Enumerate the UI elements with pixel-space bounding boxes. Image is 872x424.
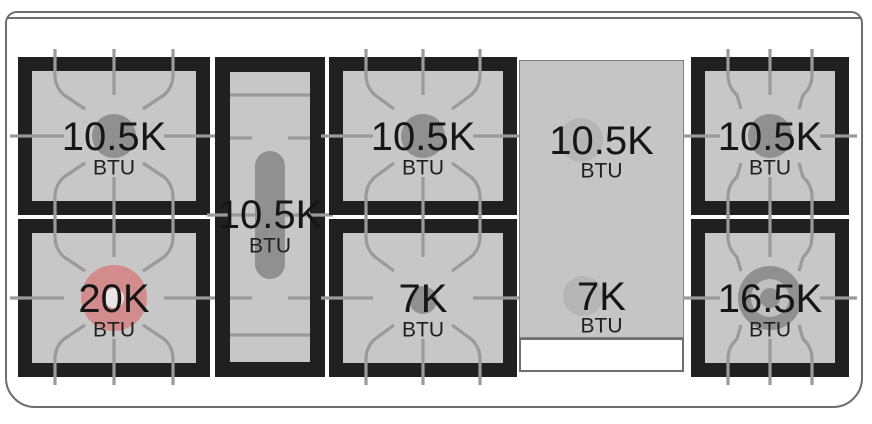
burner-back-right: 10.5K BTU <box>691 57 849 215</box>
burner-btu-unit: BTU <box>749 158 791 179</box>
burner-btu-unit: BTU <box>402 320 444 341</box>
burner-btu-unit: BTU <box>749 320 791 341</box>
burner-back-middle: 10.5K BTU <box>329 57 517 215</box>
griddle-front-btu-unit: BTU <box>581 316 623 337</box>
griddle-tray-strip <box>519 338 684 372</box>
burner-btu-value: 10.5K <box>218 195 323 235</box>
griddle-zone: 10.5K BTU 7K BTU <box>519 60 684 338</box>
griddle-front-btu-value: 7K <box>577 277 626 317</box>
burner-center-oval: 10.5K BTU <box>215 57 325 377</box>
burner-btu-value: 16.5K <box>718 279 823 319</box>
burner-btu-unit: BTU <box>93 158 135 179</box>
burner-btu-unit: BTU <box>249 236 291 257</box>
burner-btu-unit: BTU <box>402 158 444 179</box>
burner-front-middle: 7K BTU <box>329 219 517 377</box>
burner-front-right: 16.5K BTU <box>691 219 849 377</box>
cooktop-back-edge-line <box>8 17 860 19</box>
burner-btu-value: 10.5K <box>371 117 476 157</box>
burner-btu-value: 10.5K <box>62 117 167 157</box>
burner-btu-unit: BTU <box>93 320 135 341</box>
burner-btu-value: 7K <box>399 279 448 319</box>
griddle-back-btu-value: 10.5K <box>549 121 654 161</box>
burner-front-left: 20K BTU <box>18 219 210 377</box>
burner-btu-value: 20K <box>78 279 149 319</box>
cooktop-diagram: 10.5K BTU 20K BTU 10.5K BTU 10.5K BTU 7K… <box>0 0 872 424</box>
griddle-back-btu-unit: BTU <box>581 161 623 182</box>
burner-back-left: 10.5K BTU <box>18 57 210 215</box>
burner-btu-value: 10.5K <box>718 117 823 157</box>
